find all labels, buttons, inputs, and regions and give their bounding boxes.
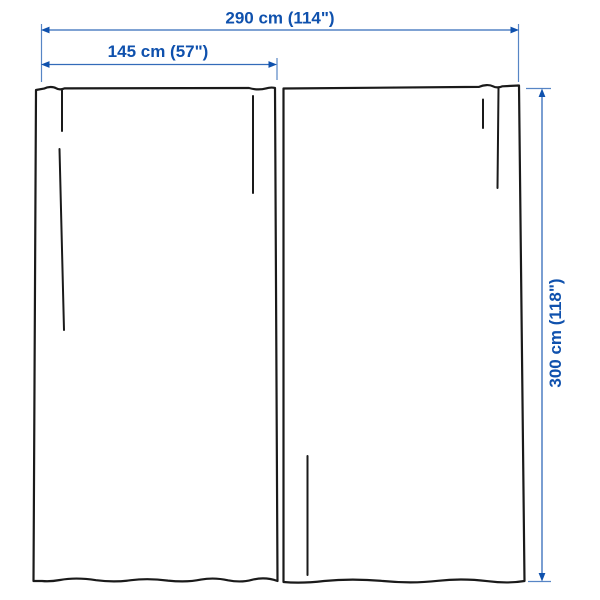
left-curtain-panel: [34, 87, 278, 581]
right-panel-outline: [284, 85, 525, 583]
fold-line: [498, 89, 499, 189]
left-panel-outline: [34, 87, 278, 581]
arrowhead-left-icon: [41, 61, 50, 68]
diagram-svg: 290 cm (114") 145 cm (57") 300 cm (118"): [0, 0, 600, 600]
arrowhead-right-icon: [269, 61, 278, 68]
arrowhead-up-icon: [539, 89, 546, 98]
total-width-label: 290 cm (114"): [225, 9, 334, 28]
arrowhead-right-icon: [511, 27, 520, 34]
dimension-panel-width: 145 cm (57"): [41, 42, 277, 80]
height-label: 300 cm (118"): [546, 278, 565, 387]
curtain-dimension-diagram: 290 cm (114") 145 cm (57") 300 cm (118"): [0, 0, 600, 600]
arrowhead-down-icon: [539, 573, 546, 582]
right-curtain-panel: [284, 85, 525, 583]
arrowhead-left-icon: [41, 27, 50, 34]
dimension-height: 300 cm (118"): [526, 89, 565, 582]
panel-width-label: 145 cm (57"): [108, 42, 209, 61]
